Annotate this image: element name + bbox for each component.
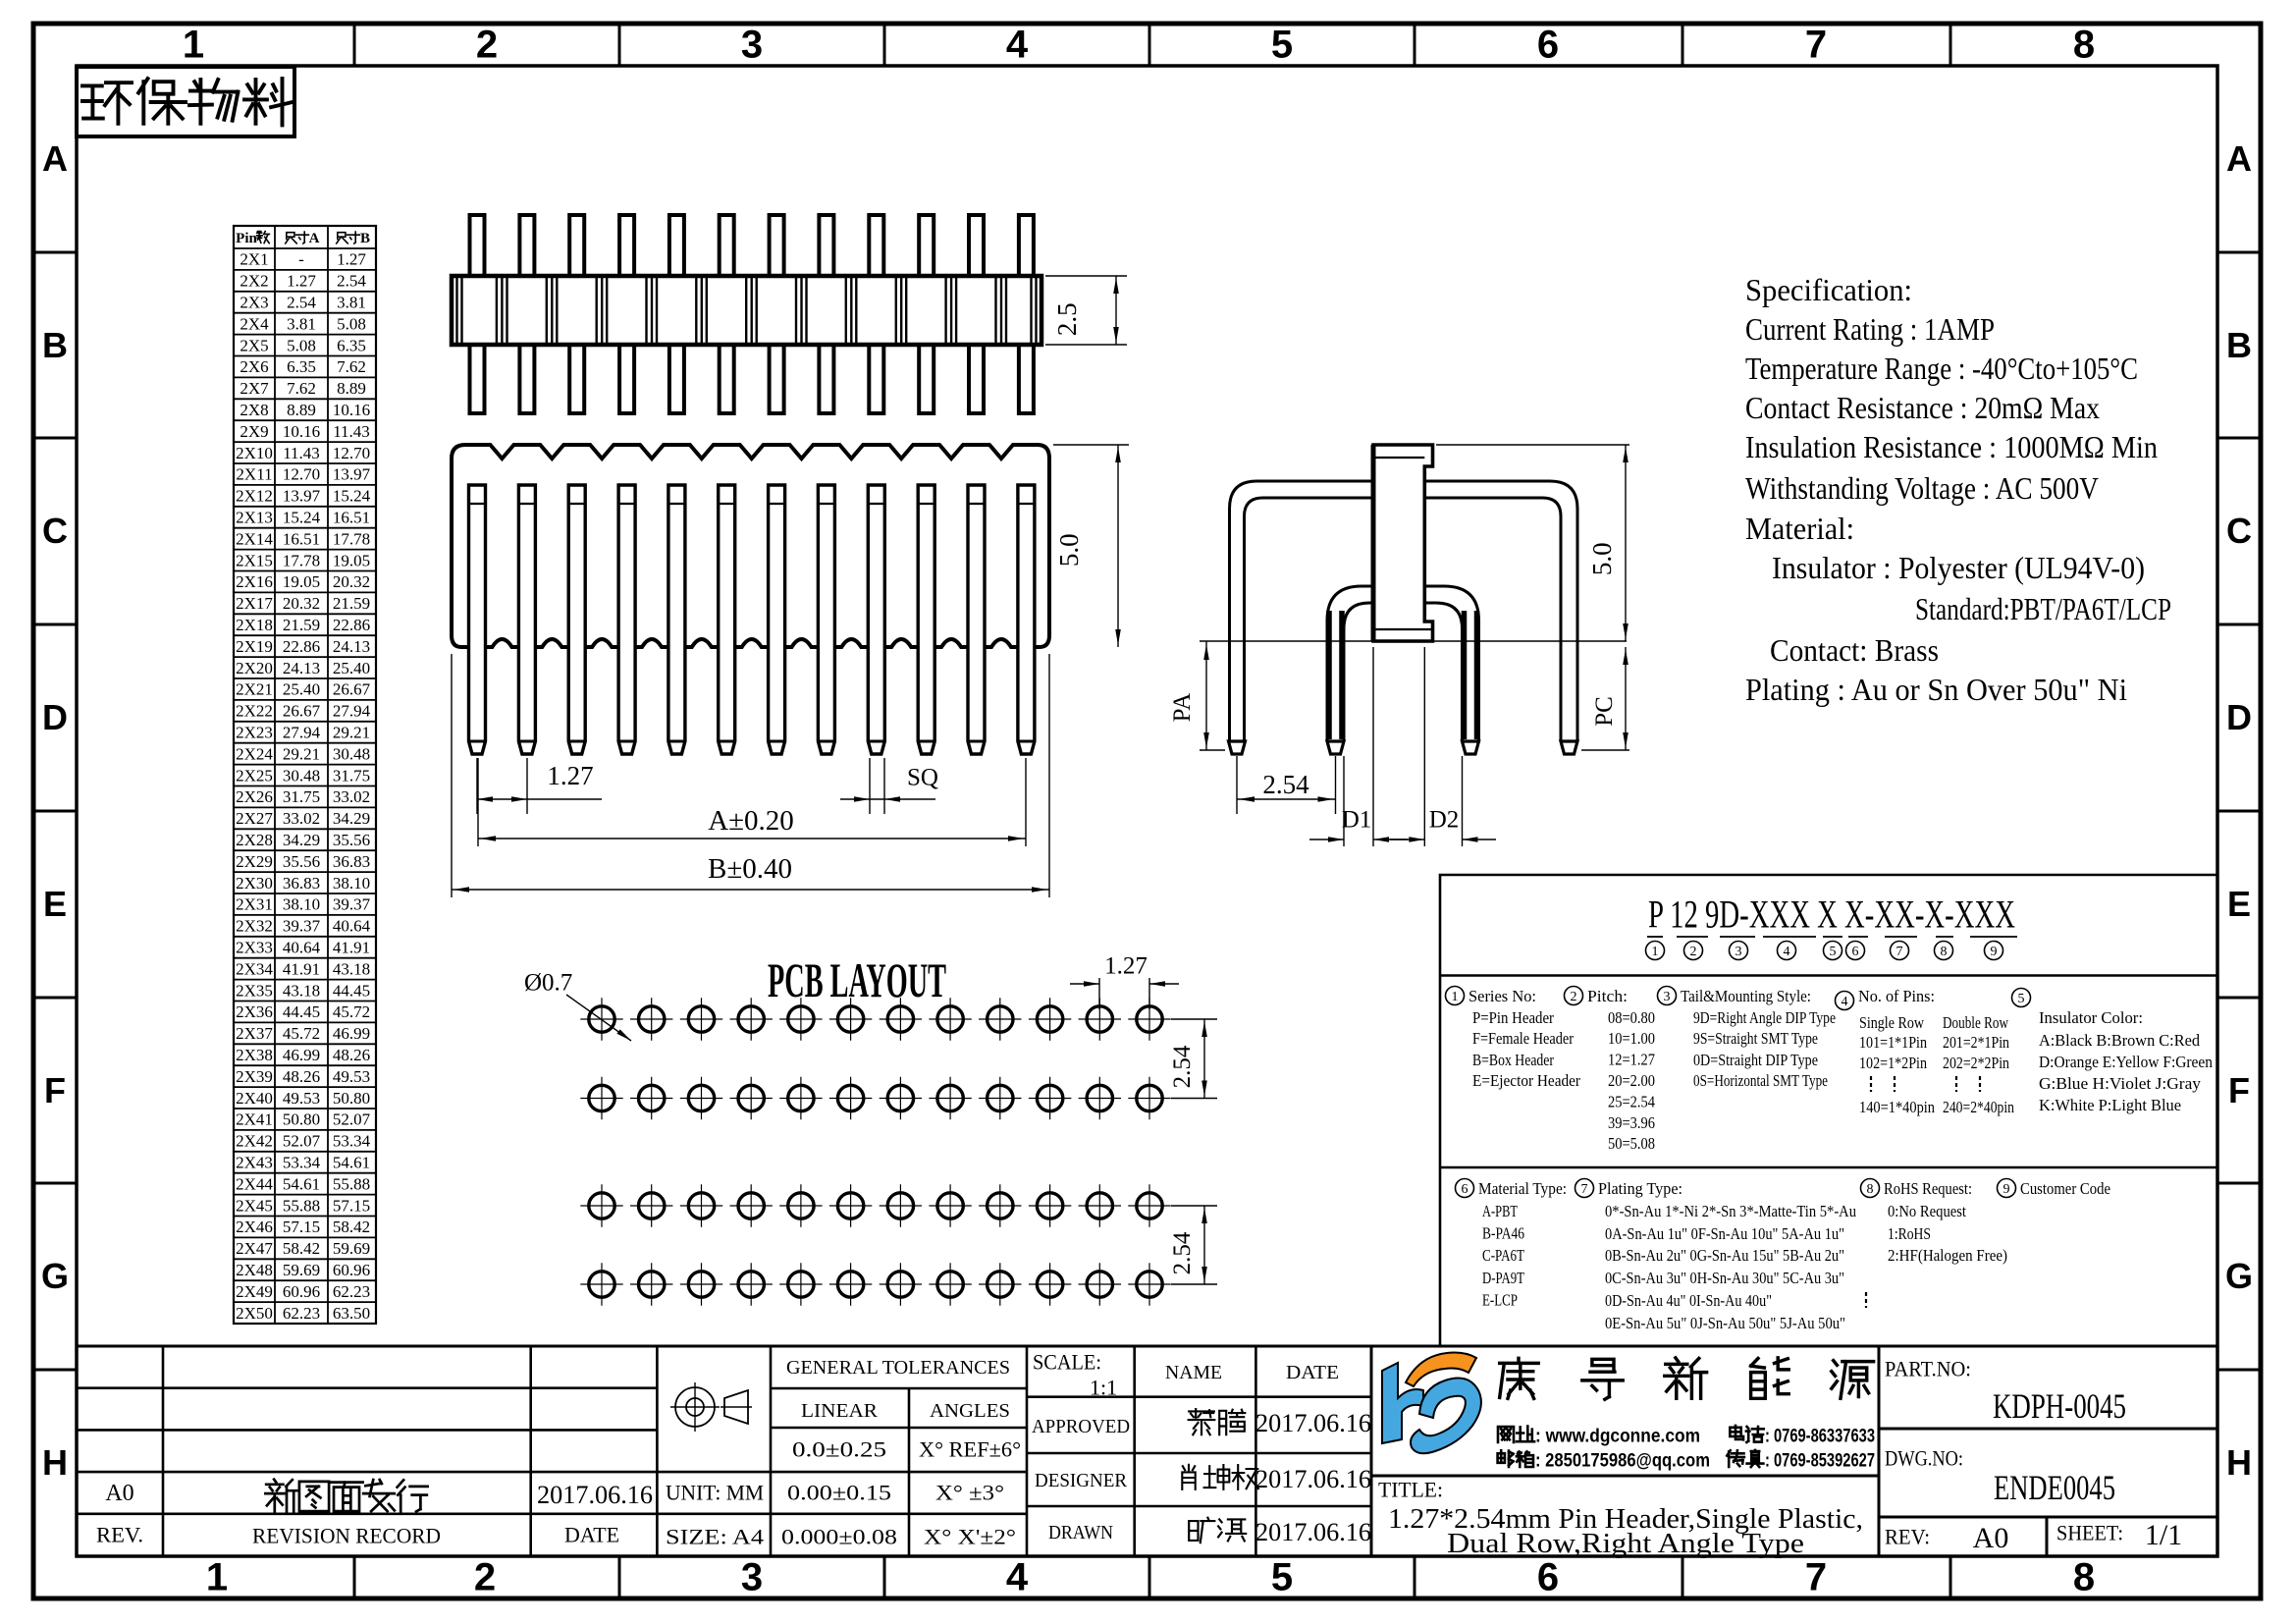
svg-text:10.16: 10.16: [333, 401, 370, 419]
svg-text:Pitch:: Pitch:: [1587, 987, 1628, 1005]
svg-text:F: F: [2228, 1070, 2250, 1110]
svg-text:59.69: 59.69: [283, 1261, 320, 1279]
svg-text:2.5: 2.5: [1052, 302, 1082, 336]
svg-text:2X35: 2X35: [236, 981, 273, 1000]
svg-text:240=2*40pin: 240=2*40pin: [1943, 1098, 2014, 1116]
svg-text:4: 4: [1842, 995, 1848, 1009]
svg-text:2017.06.16: 2017.06.16: [537, 1481, 653, 1509]
svg-text:2X6: 2X6: [240, 357, 268, 376]
svg-text:P 12 9D-XXX X X-XX-X-XXX: P 12 9D-XXX X X-XX-X-XXX: [1648, 893, 2015, 937]
svg-text:44.45: 44.45: [283, 1002, 320, 1021]
svg-text:41.91: 41.91: [283, 959, 320, 978]
svg-text:1: 1: [206, 1556, 228, 1599]
svg-text:7: 7: [1805, 24, 1827, 67]
svg-text:X° ±3°: X° ±3°: [935, 1481, 1004, 1505]
svg-text:A-PBT: A-PBT: [1482, 1202, 1518, 1220]
svg-text:E=Ejector Header: E=Ejector Header: [1472, 1071, 1580, 1090]
svg-text:REV:: REV:: [1885, 1525, 1930, 1549]
svg-text:30.48: 30.48: [283, 766, 320, 785]
svg-text:26.67: 26.67: [283, 702, 321, 721]
svg-text:SCALE:: SCALE:: [1033, 1350, 1101, 1375]
svg-text:5: 5: [1271, 24, 1293, 67]
svg-text:33.02: 33.02: [333, 787, 370, 806]
svg-text:101=1*1Pin: 101=1*1Pin: [1859, 1033, 1927, 1052]
svg-text:46.99: 46.99: [283, 1046, 320, 1064]
svg-text:202=2*2Pin: 202=2*2Pin: [1943, 1054, 2009, 1072]
svg-text:62.23: 62.23: [283, 1304, 320, 1323]
svg-text:F=Female Header: F=Female Header: [1472, 1029, 1574, 1048]
svg-text:Plating : Au or Sn Over 50u" N: Plating : Au or Sn Over 50u" Ni: [1745, 672, 2127, 707]
svg-text:39.37: 39.37: [283, 917, 321, 936]
svg-text:48.26: 48.26: [333, 1046, 370, 1064]
svg-text:2017.06.16: 2017.06.16: [1255, 1518, 1371, 1546]
svg-text:2X10: 2X10: [236, 444, 273, 462]
svg-text:36.83: 36.83: [333, 852, 370, 871]
svg-text:2X44: 2X44: [236, 1174, 273, 1193]
svg-text:38.10: 38.10: [333, 874, 370, 893]
svg-text:20=2.00: 20=2.00: [1608, 1071, 1655, 1090]
svg-text:Plating Type:: Plating Type:: [1598, 1179, 1682, 1198]
svg-text:7.62: 7.62: [287, 379, 316, 398]
svg-text:8: 8: [1941, 945, 1948, 959]
svg-text:63.50: 63.50: [333, 1304, 370, 1323]
svg-text:2X49: 2X49: [236, 1282, 273, 1301]
svg-text:16.51: 16.51: [333, 509, 370, 527]
svg-text:A: A: [42, 138, 68, 179]
svg-text:2X37: 2X37: [236, 1024, 273, 1043]
svg-text:34.29: 34.29: [283, 831, 320, 849]
svg-text:8: 8: [2073, 1556, 2095, 1599]
svg-text:K:White P:Light Blue: K:White P:Light Blue: [2039, 1096, 2181, 1114]
svg-text:22.86: 22.86: [283, 637, 320, 656]
svg-text:201=2*1Pin: 201=2*1Pin: [1943, 1033, 2009, 1052]
svg-text:2X39: 2X39: [236, 1067, 273, 1086]
svg-text:54.61: 54.61: [333, 1154, 370, 1172]
svg-text:A0: A0: [1973, 1522, 2009, 1554]
svg-text:2X23: 2X23: [236, 724, 273, 742]
svg-text:9: 9: [2003, 1182, 2010, 1197]
svg-text:D: D: [2226, 697, 2252, 737]
svg-text:1.27: 1.27: [287, 272, 316, 291]
svg-text:7: 7: [1896, 945, 1903, 959]
svg-text:PART.NO:: PART.NO:: [1885, 1357, 1971, 1381]
svg-text:35.56: 35.56: [333, 831, 370, 849]
svg-text:D2: D2: [1429, 807, 1460, 834]
svg-text:Series No:: Series No:: [1468, 987, 1536, 1005]
svg-text:D:Orange E:Yellow F:Green: D:Orange E:Yellow F:Green: [2039, 1053, 2213, 1071]
svg-text:2X17: 2X17: [236, 594, 273, 613]
svg-text:X° X'±2°: X° X'±2°: [924, 1525, 1016, 1549]
svg-text:11.43: 11.43: [283, 444, 320, 462]
svg-text:No. of Pins:: No. of Pins:: [1858, 987, 1935, 1005]
svg-text:KDPH-0045: KDPH-0045: [1993, 1386, 2126, 1426]
svg-text:PCB LAYOUT: PCB LAYOUT: [768, 952, 946, 1007]
svg-text:17.78: 17.78: [333, 529, 370, 548]
svg-text:43.18: 43.18: [333, 959, 370, 978]
svg-text:PC: PC: [1591, 696, 1618, 727]
svg-text:A: A: [309, 231, 320, 246]
svg-text:5.08: 5.08: [337, 314, 366, 333]
svg-text:3.81: 3.81: [337, 294, 366, 312]
svg-text:2X33: 2X33: [236, 939, 273, 957]
svg-text:2X45: 2X45: [236, 1196, 273, 1215]
svg-text:Pin: Pin: [236, 231, 257, 246]
svg-text:2.54: 2.54: [1169, 1231, 1196, 1274]
svg-text:20.32: 20.32: [333, 572, 370, 591]
svg-text:6.35: 6.35: [337, 336, 366, 354]
svg-text:Current Rating : 1AMP: Current Rating : 1AMP: [1745, 311, 1995, 347]
svg-text:GENERAL TOLERANCES: GENERAL TOLERANCES: [786, 1357, 1010, 1379]
svg-text:5.08: 5.08: [287, 336, 316, 354]
svg-text:36.83: 36.83: [283, 874, 320, 893]
svg-text:Material Type:: Material Type:: [1478, 1179, 1567, 1198]
svg-text:0E-Sn-Au 5u" 0J-Sn-Au 50u" 5J: 0E-Sn-Au 5u" 0J-Sn-Au 50u" 5J-Au 50u": [1605, 1314, 1845, 1332]
svg-text:2: 2: [1690, 945, 1697, 959]
svg-text:SQ: SQ: [907, 765, 938, 791]
svg-text:DRAWN: DRAWN: [1048, 1522, 1113, 1543]
svg-text:30.48: 30.48: [333, 744, 370, 763]
svg-text:A±0.20: A±0.20: [708, 805, 794, 837]
svg-text:P=Pin Header: P=Pin Header: [1472, 1008, 1554, 1027]
svg-text:2X41: 2X41: [236, 1110, 273, 1129]
svg-text:2X11: 2X11: [236, 465, 272, 484]
svg-text:: 2850175986@qq.com: : 2850175986@qq.com: [1535, 1451, 1710, 1472]
svg-text:RoHS Request:: RoHS Request:: [1884, 1179, 1972, 1198]
svg-text:UNIT: MM: UNIT: MM: [666, 1481, 764, 1505]
svg-text:B: B: [2226, 325, 2252, 365]
svg-text:1: 1: [1452, 990, 1459, 1004]
svg-text:5.0: 5.0: [1587, 542, 1617, 575]
svg-text:19.05: 19.05: [333, 551, 370, 569]
svg-text:2X36: 2X36: [236, 1002, 273, 1021]
svg-text:24.13: 24.13: [283, 659, 320, 677]
svg-text:2X8: 2X8: [240, 401, 268, 419]
svg-text:52.07: 52.07: [333, 1110, 371, 1129]
svg-text:2X40: 2X40: [236, 1089, 273, 1108]
svg-text:9S=Straight SMT Type: 9S=Straight SMT Type: [1693, 1029, 1818, 1048]
svg-text:B: B: [42, 325, 68, 365]
svg-text:D1: D1: [1342, 807, 1372, 834]
svg-text:NAME: NAME: [1165, 1362, 1222, 1383]
svg-text:31.75: 31.75: [333, 766, 370, 785]
svg-text:19.05: 19.05: [283, 572, 320, 591]
svg-text:48.26: 48.26: [283, 1067, 320, 1086]
svg-text:REV.: REV.: [96, 1523, 143, 1547]
svg-text:E-LCP: E-LCP: [1482, 1291, 1518, 1310]
svg-text:H: H: [2226, 1442, 2252, 1483]
svg-text:Contact Resistance : 20mΩ Max: Contact Resistance : 20mΩ Max: [1745, 390, 2100, 425]
svg-text:0D-Sn-Au 4u" 0I-Sn-Au 40u": 0D-Sn-Au 4u" 0I-Sn-Au 40u": [1605, 1291, 1772, 1310]
svg-text:1/1: 1/1: [2145, 1519, 2182, 1551]
svg-text:E: E: [43, 884, 67, 924]
svg-text:60.96: 60.96: [333, 1261, 370, 1279]
svg-text:LINEAR: LINEAR: [801, 1400, 879, 1422]
svg-text:21.59: 21.59: [333, 594, 370, 613]
svg-text:3: 3: [741, 1556, 763, 1599]
svg-text:B: B: [360, 231, 370, 246]
svg-text:0.000±0.08: 0.000±0.08: [781, 1525, 897, 1549]
svg-text:6: 6: [1852, 945, 1859, 959]
svg-text:60.96: 60.96: [283, 1282, 320, 1301]
svg-text:Single Row: Single Row: [1859, 1013, 1925, 1032]
svg-text:PA: PA: [1169, 693, 1196, 723]
svg-text:35.56: 35.56: [283, 852, 320, 871]
svg-text:G:Blue H:Violet J:Gray: G:Blue H:Violet J:Gray: [2039, 1074, 2202, 1093]
svg-text:Insulation Resistance : 1000MΩ: Insulation Resistance : 1000MΩ Min: [1745, 429, 2158, 464]
svg-text:-: -: [298, 250, 304, 269]
svg-text:SIZE: A4: SIZE: A4: [666, 1525, 764, 1549]
svg-text:Dual Row,Right Angle Type: Dual Row,Right Angle Type: [1447, 1528, 1804, 1559]
svg-text:A0: A0: [105, 1481, 133, 1506]
svg-text:4: 4: [1006, 24, 1029, 67]
svg-text:10=1.00: 10=1.00: [1608, 1029, 1655, 1048]
svg-text:25=2.54: 25=2.54: [1608, 1092, 1655, 1110]
svg-text:2X3: 2X3: [240, 294, 268, 312]
svg-text:ANGLES: ANGLES: [930, 1400, 1010, 1422]
svg-text:2X27: 2X27: [236, 809, 273, 828]
svg-text:50.80: 50.80: [283, 1110, 320, 1129]
svg-text:7: 7: [1805, 1556, 1827, 1599]
svg-text:2X42: 2X42: [236, 1132, 273, 1151]
svg-text:0*-Sn-Au 1*-Ni 2*-Sn 3*-Matte-: 0*-Sn-Au 1*-Ni 2*-Sn 3*-Matte-Tin 5*-Au: [1605, 1202, 1856, 1220]
svg-text:Standard:PBT/PA6T/LCP: Standard:PBT/PA6T/LCP: [1915, 591, 2171, 626]
svg-text:2: 2: [474, 1556, 496, 1599]
svg-text:2X18: 2X18: [236, 616, 273, 634]
svg-text:10.16: 10.16: [283, 422, 320, 441]
svg-text:3: 3: [741, 24, 763, 67]
svg-text:2X47: 2X47: [236, 1239, 273, 1258]
svg-text:2X46: 2X46: [236, 1218, 273, 1236]
svg-text:57.15: 57.15: [333, 1196, 370, 1215]
svg-text:Contact: Brass: Contact: Brass: [1770, 632, 1939, 668]
svg-text:2X19: 2X19: [236, 637, 273, 656]
svg-text:H: H: [42, 1442, 68, 1483]
svg-text:2X29: 2X29: [236, 852, 273, 871]
svg-text:C-PA6T: C-PA6T: [1482, 1246, 1524, 1265]
svg-text:2X26: 2X26: [236, 787, 273, 806]
svg-text:Material:: Material:: [1745, 511, 1854, 546]
svg-text:62.23: 62.23: [333, 1282, 370, 1301]
svg-text:43.18: 43.18: [283, 981, 320, 1000]
svg-text:ENDE0045: ENDE0045: [1994, 1468, 2115, 1507]
svg-text:12.70: 12.70: [283, 465, 320, 484]
svg-text:0A-Sn-Au 1u" 0F-Sn-Au 10u" 5A: 0A-Sn-Au 1u" 0F-Sn-Au 10u" 5A-Au 1u": [1605, 1224, 1844, 1243]
svg-text:Customer Code: Customer Code: [2020, 1179, 2110, 1198]
svg-text:2X12: 2X12: [236, 487, 273, 506]
svg-text:3: 3: [1664, 990, 1671, 1004]
svg-text:B-PA46: B-PA46: [1482, 1224, 1524, 1243]
svg-text:Double Row: Double Row: [1943, 1013, 2009, 1032]
svg-text:B±0.40: B±0.40: [708, 853, 792, 885]
svg-text:B=Box Header: B=Box Header: [1472, 1051, 1554, 1069]
svg-text:E: E: [2227, 884, 2251, 924]
svg-text:21.59: 21.59: [283, 616, 320, 634]
svg-text:8: 8: [2073, 24, 2095, 67]
svg-text:24.13: 24.13: [333, 637, 370, 656]
svg-text:53.34: 53.34: [333, 1132, 371, 1151]
svg-text:2X5: 2X5: [240, 336, 268, 354]
svg-text:2: 2: [476, 24, 498, 67]
svg-text:5: 5: [1271, 1556, 1293, 1599]
svg-text:13.97: 13.97: [283, 487, 321, 506]
svg-text:20.32: 20.32: [283, 594, 320, 613]
svg-text:Ø0.7: Ø0.7: [524, 970, 572, 997]
svg-text:0B-Sn-Au 2u" 0G-Sn-Au 15u" 5B: 0B-Sn-Au 2u" 0G-Sn-Au 15u" 5B-Au 2u": [1605, 1246, 1844, 1265]
svg-text:33.02: 33.02: [283, 809, 320, 828]
svg-text:D-PA9T: D-PA9T: [1482, 1269, 1524, 1287]
svg-text:15.24: 15.24: [283, 509, 321, 527]
svg-text:46.99: 46.99: [333, 1024, 370, 1043]
svg-text:G: G: [41, 1256, 69, 1296]
svg-text:50.80: 50.80: [333, 1089, 370, 1108]
svg-text:1.27: 1.27: [1104, 953, 1148, 980]
svg-text:27.94: 27.94: [333, 702, 371, 721]
svg-text:6: 6: [1537, 24, 1559, 67]
svg-text:Insulator Color:: Insulator Color:: [2039, 1008, 2143, 1027]
svg-text:0D=Straight DIP Type: 0D=Straight DIP Type: [1693, 1051, 1818, 1069]
svg-text:: 0769-86337633: : 0769-86337633: [1765, 1427, 1875, 1447]
svg-text:D: D: [42, 697, 68, 737]
svg-text:A:Black B:Brown C:Red: A:Black B:Brown C:Red: [2039, 1031, 2200, 1050]
svg-text:Withstanding Voltage : AC 500V: Withstanding Voltage : AC 500V: [1745, 470, 2099, 506]
svg-text:34.29: 34.29: [333, 809, 370, 828]
svg-text:45.72: 45.72: [333, 1002, 370, 1021]
svg-text:5.0: 5.0: [1054, 533, 1084, 567]
svg-text:1: 1: [183, 24, 204, 67]
svg-text:2X32: 2X32: [236, 917, 273, 936]
svg-text:29.21: 29.21: [333, 724, 370, 742]
svg-text:8.89: 8.89: [287, 401, 316, 419]
svg-text:41.91: 41.91: [333, 939, 370, 957]
svg-text:25.40: 25.40: [283, 680, 320, 699]
svg-text:0.00±0.15: 0.00±0.15: [787, 1481, 891, 1505]
svg-text:2X38: 2X38: [236, 1046, 273, 1064]
svg-text:26.67: 26.67: [333, 680, 371, 699]
svg-text:DATE: DATE: [1286, 1362, 1339, 1383]
svg-text:SHEET:: SHEET:: [2056, 1521, 2123, 1545]
svg-text:2X21: 2X21: [236, 680, 273, 699]
svg-text:2017.06.16: 2017.06.16: [1255, 1465, 1371, 1493]
svg-text:2X7: 2X7: [240, 379, 269, 398]
svg-text:Specification:: Specification:: [1745, 272, 1912, 307]
svg-text:DESIGNER: DESIGNER: [1035, 1470, 1128, 1491]
svg-text:0.0±0.25: 0.0±0.25: [792, 1437, 886, 1462]
svg-text:2: 2: [1571, 990, 1577, 1004]
svg-text:6: 6: [1462, 1182, 1468, 1197]
svg-text:0:No Request: 0:No Request: [1888, 1202, 1966, 1220]
svg-text:1.27: 1.27: [547, 761, 593, 790]
svg-text:2X4: 2X4: [240, 314, 269, 333]
svg-text:13.97: 13.97: [333, 465, 371, 484]
svg-text:08=0.80: 08=0.80: [1608, 1008, 1655, 1027]
svg-text:Insulator : Polyester (UL94V-0: Insulator : Polyester (UL94V-0): [1772, 550, 2145, 585]
svg-text:11.43: 11.43: [333, 422, 370, 441]
svg-text:39=3.96: 39=3.96: [1608, 1113, 1655, 1132]
svg-text:6: 6: [1537, 1556, 1559, 1599]
svg-text:59.69: 59.69: [333, 1239, 370, 1258]
svg-text:55.88: 55.88: [283, 1196, 320, 1215]
svg-text:2.54: 2.54: [1169, 1045, 1196, 1088]
svg-text:58.42: 58.42: [333, 1218, 370, 1236]
svg-text:2X22: 2X22: [236, 702, 273, 721]
svg-text:2X2: 2X2: [240, 272, 268, 291]
svg-text:2X43: 2X43: [236, 1154, 273, 1172]
svg-text:0C-Sn-Au 3u" 0H-Sn-Au 30u" 5C: 0C-Sn-Au 3u" 0H-Sn-Au 30u" 5C-Au 3u": [1605, 1269, 1844, 1287]
svg-text:54.61: 54.61: [283, 1174, 320, 1193]
svg-text:2X50: 2X50: [236, 1304, 273, 1323]
svg-text:2X1: 2X1: [240, 250, 268, 269]
svg-text:15.24: 15.24: [333, 487, 371, 506]
svg-text:2X25: 2X25: [236, 766, 273, 785]
svg-text:2X13: 2X13: [236, 509, 273, 527]
svg-text:Tail&Mounting Style:: Tail&Mounting Style:: [1681, 987, 1811, 1005]
svg-text:7: 7: [1581, 1182, 1588, 1197]
svg-text:2017.06.16: 2017.06.16: [1255, 1409, 1371, 1437]
svg-text:44.45: 44.45: [333, 981, 370, 1000]
svg-text:22.86: 22.86: [333, 616, 370, 634]
svg-text:4: 4: [1784, 945, 1790, 959]
svg-text:50=5.08: 50=5.08: [1608, 1134, 1655, 1153]
svg-text:2X14: 2X14: [236, 529, 273, 548]
svg-text:2.54: 2.54: [287, 294, 316, 312]
svg-text:X° REF±6°: X° REF±6°: [919, 1437, 1021, 1462]
svg-text:2X28: 2X28: [236, 831, 273, 849]
svg-text:7.62: 7.62: [337, 357, 366, 376]
svg-text:12=1.27: 12=1.27: [1608, 1051, 1655, 1069]
svg-text:40.64: 40.64: [333, 917, 371, 936]
svg-text:45.72: 45.72: [283, 1024, 320, 1043]
svg-text:38.10: 38.10: [283, 895, 320, 914]
svg-text:C: C: [42, 511, 68, 551]
svg-text:: www.dgconne.com: : www.dgconne.com: [1535, 1427, 1700, 1447]
svg-text:55.88: 55.88: [333, 1174, 370, 1193]
svg-text:53.34: 53.34: [283, 1154, 321, 1172]
svg-text:4: 4: [1006, 1556, 1029, 1599]
svg-text:5: 5: [2018, 992, 2025, 1006]
svg-text:58.42: 58.42: [283, 1239, 320, 1258]
svg-text:3.81: 3.81: [287, 314, 316, 333]
svg-text:25.40: 25.40: [333, 659, 370, 677]
svg-text:5: 5: [1830, 945, 1837, 959]
svg-text:0S=Horizontal SMT Type: 0S=Horizontal SMT Type: [1693, 1071, 1828, 1090]
svg-text:3: 3: [1735, 945, 1742, 959]
svg-text:16.51: 16.51: [283, 529, 320, 548]
svg-text:8.89: 8.89: [337, 379, 366, 398]
svg-text:: 0769-85392627: : 0769-85392627: [1765, 1451, 1875, 1472]
svg-text:2X34: 2X34: [236, 959, 273, 978]
svg-text:2X9: 2X9: [240, 422, 268, 441]
svg-text:F: F: [44, 1070, 66, 1110]
svg-text:8: 8: [1867, 1182, 1874, 1197]
svg-text:A: A: [2226, 138, 2252, 179]
svg-text:2X48: 2X48: [236, 1261, 273, 1279]
svg-text:12.70: 12.70: [333, 444, 370, 462]
svg-text:49.53: 49.53: [283, 1089, 320, 1108]
svg-text:2:HF(Halogen Free): 2:HF(Halogen Free): [1888, 1246, 2007, 1265]
svg-text:39.37: 39.37: [333, 895, 371, 914]
svg-text:31.75: 31.75: [283, 787, 320, 806]
svg-text:DWG.NO:: DWG.NO:: [1885, 1446, 1963, 1471]
svg-text:9: 9: [1991, 945, 1998, 959]
svg-text:2.54: 2.54: [337, 272, 366, 291]
svg-text:49.53: 49.53: [333, 1067, 370, 1086]
svg-text:2X20: 2X20: [236, 659, 273, 677]
svg-text:1: 1: [1652, 945, 1659, 959]
svg-text:2X31: 2X31: [236, 895, 273, 914]
svg-text:102=1*2Pin: 102=1*2Pin: [1859, 1054, 1927, 1072]
svg-text:17.78: 17.78: [283, 551, 320, 569]
svg-text:APPROVED: APPROVED: [1032, 1416, 1130, 1437]
